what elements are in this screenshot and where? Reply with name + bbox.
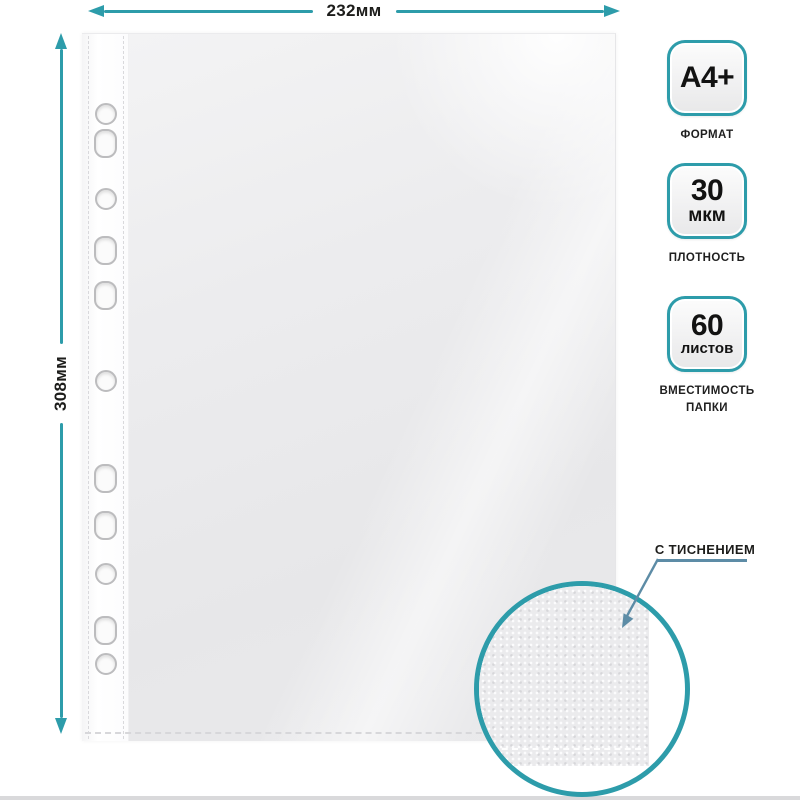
stitch-seam [123,36,124,739]
product-infographic: 232мм 308мм A4 [0,0,800,800]
dimension-line [60,423,63,718]
punch-hole [95,653,117,675]
punched-strip [82,34,128,741]
stitch-seam [88,36,89,739]
badge-capacity-label: ВМЕСТИМОСТЬ ПАПКИ [659,383,754,416]
image-bottom-edge [0,796,800,800]
badge-density-value: 30 [691,176,723,207]
badge-density-unit: мкм [688,206,726,226]
arrow-down-icon [55,718,67,734]
badge-density: 30 мкм ПЛОТНОСТЬ [645,163,769,267]
badge-format-value: A4+ [680,63,734,94]
punch-hole [94,129,117,158]
badge-capacity-value: 60 [691,311,723,342]
width-dimension: 232мм [88,1,620,21]
magnified-weld-seam [474,748,641,750]
punch-hole [95,563,117,585]
badge-capacity-label-line1: ВМЕСТИМОСТЬ [659,385,754,397]
badge-format: A4+ ФОРМАТ [645,40,769,144]
punch-hole [95,188,117,210]
arrow-up-icon [55,33,67,49]
punch-hole [94,511,117,540]
dimension-line [60,49,63,344]
punch-hole [94,616,117,645]
punch-hole [95,370,117,392]
embossing-callout-label: С ТИСНЕНИЕМ [650,542,760,557]
punch-hole [94,464,117,493]
height-dimension-label: 308мм [51,344,71,423]
badge-format-box: A4+ [667,40,747,116]
height-dimension: 308мм [51,33,71,734]
badge-format-label: ФОРМАТ [680,127,733,144]
arrow-left-icon [88,5,104,17]
callout-arrow-icon [610,556,670,640]
dimension-line [104,10,313,13]
dimension-line [396,10,605,13]
punch-hole [95,103,117,125]
badge-capacity-label-line2: ПАПКИ [686,402,728,414]
badge-capacity-unit: листов [681,341,734,357]
width-dimension-label: 232мм [313,1,396,21]
arrow-right-icon [604,5,620,17]
badge-capacity: 60 листов ВМЕСТИМОСТЬ ПАПКИ [645,296,769,416]
punch-hole [94,236,117,265]
punch-hole [94,281,117,310]
badge-density-label: ПЛОТНОСТЬ [669,250,745,267]
callout-underline [657,559,747,562]
badge-capacity-box: 60 листов [667,296,747,372]
badge-density-box: 30 мкм [667,163,747,239]
